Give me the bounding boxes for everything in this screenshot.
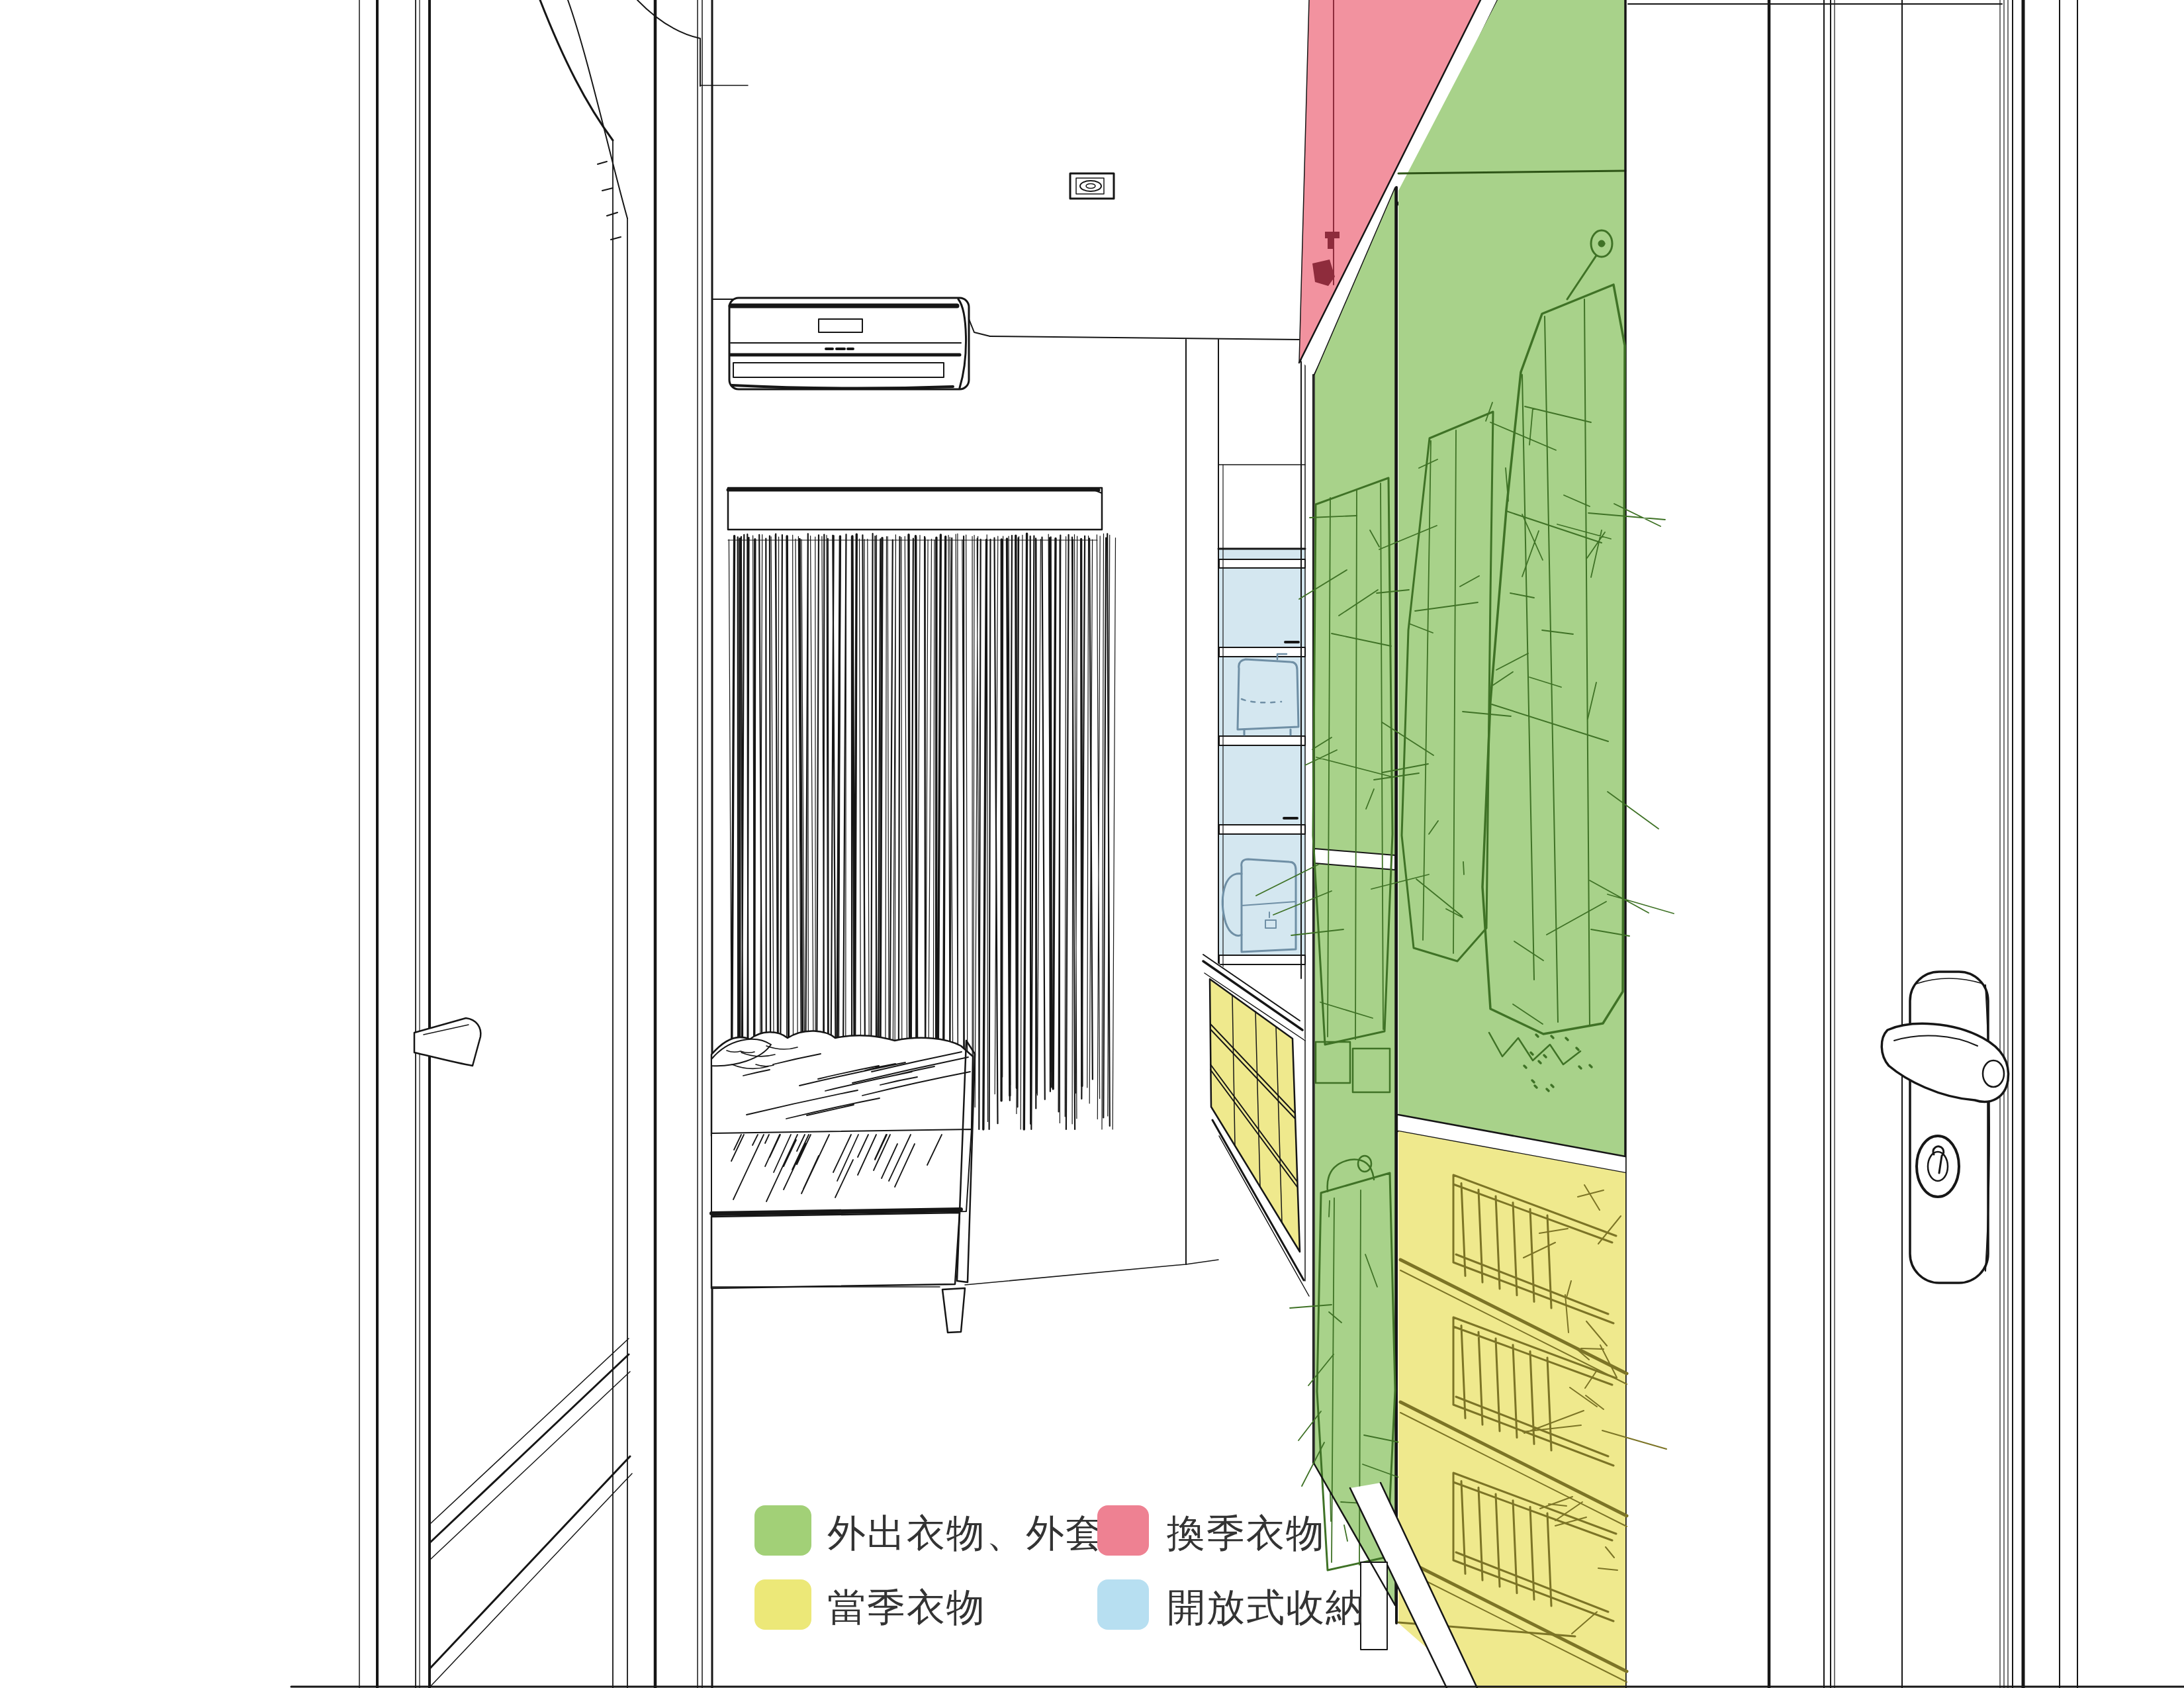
legend-label-season-change: 換季衣物 (1167, 1511, 1326, 1556)
right-door (1769, 0, 2077, 1688)
bed (711, 1031, 1218, 1333)
legend: 外出衣物、外套 換季衣物 當季衣物 開放式收納 (754, 1505, 1365, 1630)
legend-label-current-season: 當季衣物 (827, 1585, 986, 1630)
walk-in-closet-rendering: 外出衣物、外套 換季衣物 當季衣物 開放式收納 (0, 0, 2184, 1688)
right-door-handle (1882, 972, 2008, 1283)
legend-swatch-current-season (754, 1579, 811, 1630)
curtain-pelmet (728, 488, 1102, 540)
air-conditioner (729, 298, 969, 389)
door-lever-icon (1882, 1023, 2008, 1102)
legend-swatch-outing (754, 1505, 811, 1556)
open-storage-zone (1218, 548, 1305, 965)
door-bottom-molding (430, 1338, 629, 1524)
legend-swatch-season-change (1097, 1505, 1149, 1556)
bed-leg (942, 1288, 965, 1333)
bed-base (711, 1213, 960, 1288)
legend-label-outing: 外出衣物、外套 (827, 1511, 1105, 1556)
left-door-handle-icon (414, 1018, 480, 1066)
left-door (359, 0, 748, 1688)
ceiling-light-icon (1070, 173, 1114, 199)
open-storage-shelves (1186, 340, 1313, 1463)
legend-label-open-storage: 開放式收納 (1167, 1585, 1365, 1630)
drawer-cabinet (1203, 953, 1309, 1296)
legend-swatch-open-storage (1097, 1579, 1149, 1630)
